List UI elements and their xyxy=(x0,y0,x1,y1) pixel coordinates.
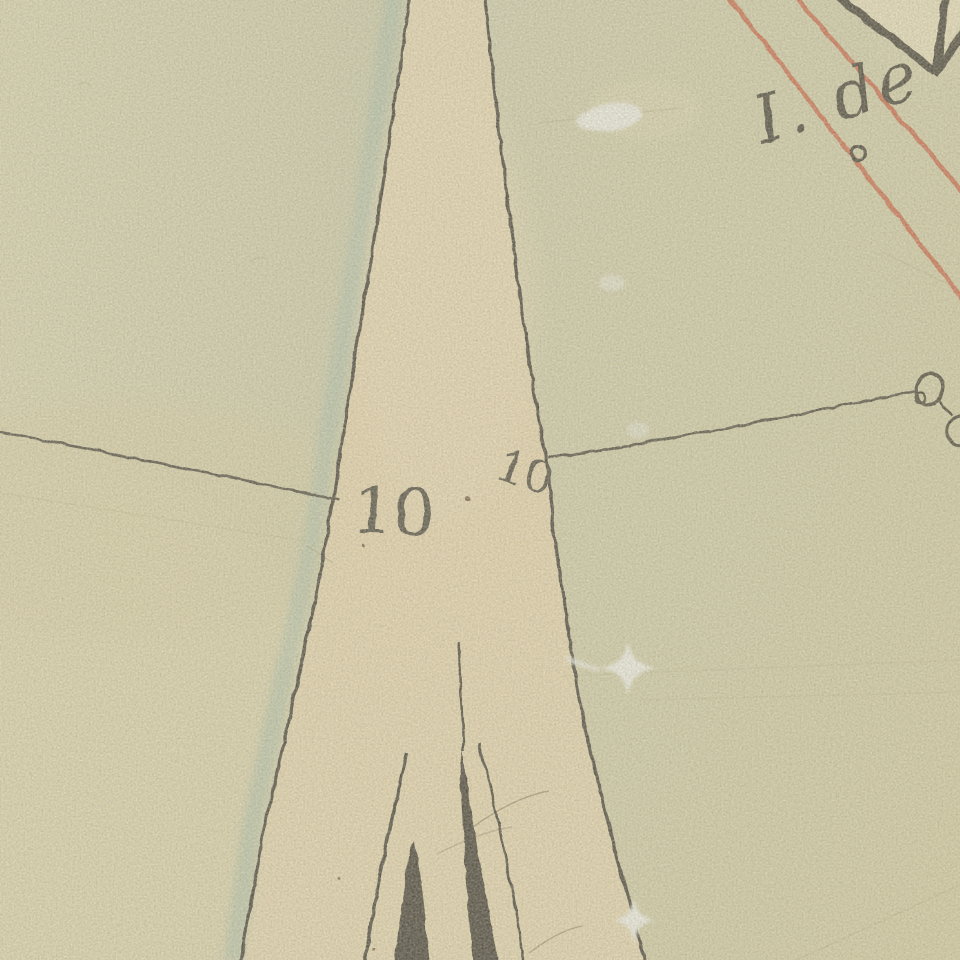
nautical-chart-scan: I. de 10 10 xyxy=(0,0,960,960)
chart-artwork: I. de 10 10 xyxy=(0,0,960,960)
paper-grain xyxy=(0,0,960,960)
